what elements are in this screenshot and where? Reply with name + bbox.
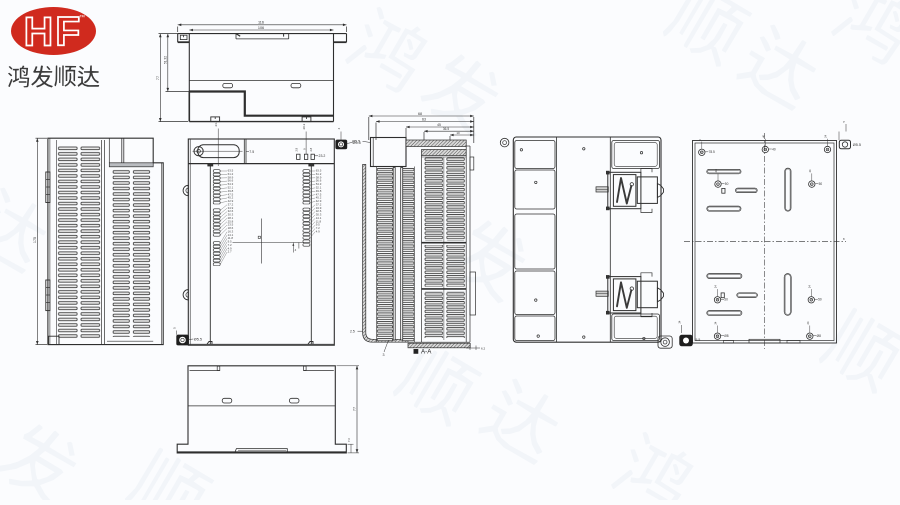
svg-text:40: 40 bbox=[772, 147, 776, 151]
svg-text:63: 63 bbox=[422, 117, 426, 121]
svg-text:78.5: 78.5 bbox=[709, 150, 715, 154]
svg-text:116: 116 bbox=[258, 20, 264, 24]
svg-text:175: 175 bbox=[33, 237, 37, 243]
svg-text:7.5: 7.5 bbox=[249, 150, 254, 154]
svg-text:™: ™ bbox=[79, 14, 85, 21]
svg-text:3: 3 bbox=[383, 353, 385, 357]
svg-text:2.8: 2.8 bbox=[295, 147, 299, 151]
svg-text:Ø5.5: Ø5.5 bbox=[194, 337, 202, 341]
svg-text:Ø8: Ø8 bbox=[724, 334, 728, 338]
svg-text:2.5: 2.5 bbox=[350, 330, 355, 334]
svg-text:45: 45 bbox=[437, 123, 441, 127]
svg-text:23.2: 23.2 bbox=[319, 154, 326, 158]
svg-text:Ø8: Ø8 bbox=[817, 334, 821, 338]
svg-text:50: 50 bbox=[724, 298, 728, 302]
svg-text:50: 50 bbox=[725, 182, 729, 186]
svg-text:51.32: 51.32 bbox=[164, 56, 168, 64]
svg-text:6.2: 6.2 bbox=[481, 347, 486, 351]
svg-text:Ø5.5: Ø5.5 bbox=[352, 140, 360, 144]
svg-text:68: 68 bbox=[418, 112, 422, 116]
svg-text:24.2: 24.2 bbox=[214, 120, 218, 126]
svg-text:4.9: 4.9 bbox=[316, 229, 320, 233]
svg-text:10: 10 bbox=[456, 131, 460, 135]
svg-text:A-A: A-A bbox=[421, 349, 432, 356]
svg-text:2.7: 2.7 bbox=[228, 250, 232, 254]
svg-text:7.6: 7.6 bbox=[347, 438, 351, 442]
svg-text:50: 50 bbox=[819, 182, 823, 186]
svg-text:77: 77 bbox=[353, 407, 357, 411]
svg-text:HF: HF bbox=[24, 9, 83, 55]
svg-text:36.5: 36.5 bbox=[443, 127, 449, 131]
svg-text:50: 50 bbox=[818, 298, 822, 302]
svg-text:20.2: 20.2 bbox=[302, 123, 306, 129]
svg-text:5.5: 5.5 bbox=[696, 338, 701, 342]
svg-text:77: 77 bbox=[156, 76, 160, 80]
svg-text:106: 106 bbox=[258, 26, 264, 30]
svg-text:2.8: 2.8 bbox=[309, 147, 313, 151]
svg-text:Ø5.5: Ø5.5 bbox=[853, 143, 861, 147]
